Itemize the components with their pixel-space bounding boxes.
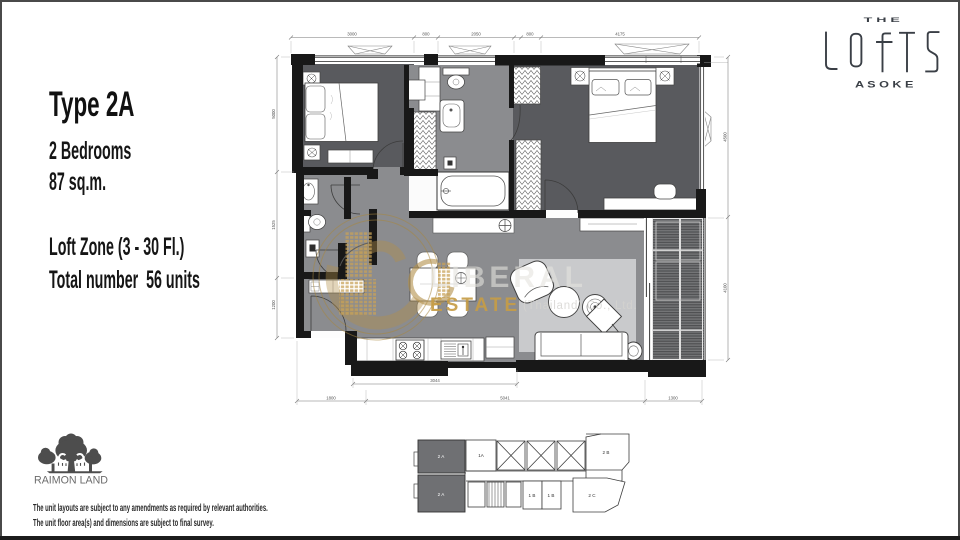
svg-text:4500: 4500 (723, 132, 728, 142)
svg-text:4175: 4175 (615, 32, 625, 37)
svg-text:1 B: 1 B (548, 493, 555, 498)
svg-text:800: 800 (526, 32, 534, 37)
svg-text:2 A: 2 A (438, 492, 446, 497)
svg-text:2 B: 2 B (603, 450, 610, 455)
svg-text:2 C: 2 C (588, 493, 596, 498)
svg-text:4100: 4100 (723, 283, 728, 293)
svg-text:3044: 3044 (430, 378, 440, 383)
svg-text:3000: 3000 (347, 32, 357, 37)
svg-text:1800: 1800 (326, 396, 336, 401)
svg-text:1 B: 1 B (529, 493, 536, 498)
svg-text:(Thailand) Co., Ltd.: (Thailand) Co., Ltd. (523, 300, 637, 312)
svg-text:2 A: 2 A (438, 454, 446, 459)
svg-text:5000: 5000 (271, 109, 276, 119)
svg-text:1200: 1200 (271, 300, 276, 310)
svg-text:ESTATE: ESTATE (430, 295, 520, 316)
svg-text:1525: 1525 (271, 220, 276, 230)
svg-text:LIBERAL: LIBERAL (429, 261, 587, 294)
svg-text:5041: 5041 (500, 396, 510, 401)
svg-text:1300: 1300 (668, 396, 678, 401)
svg-text:1A: 1A (478, 453, 485, 458)
svg-text:800: 800 (422, 32, 430, 37)
svg-text:2050: 2050 (471, 32, 481, 37)
